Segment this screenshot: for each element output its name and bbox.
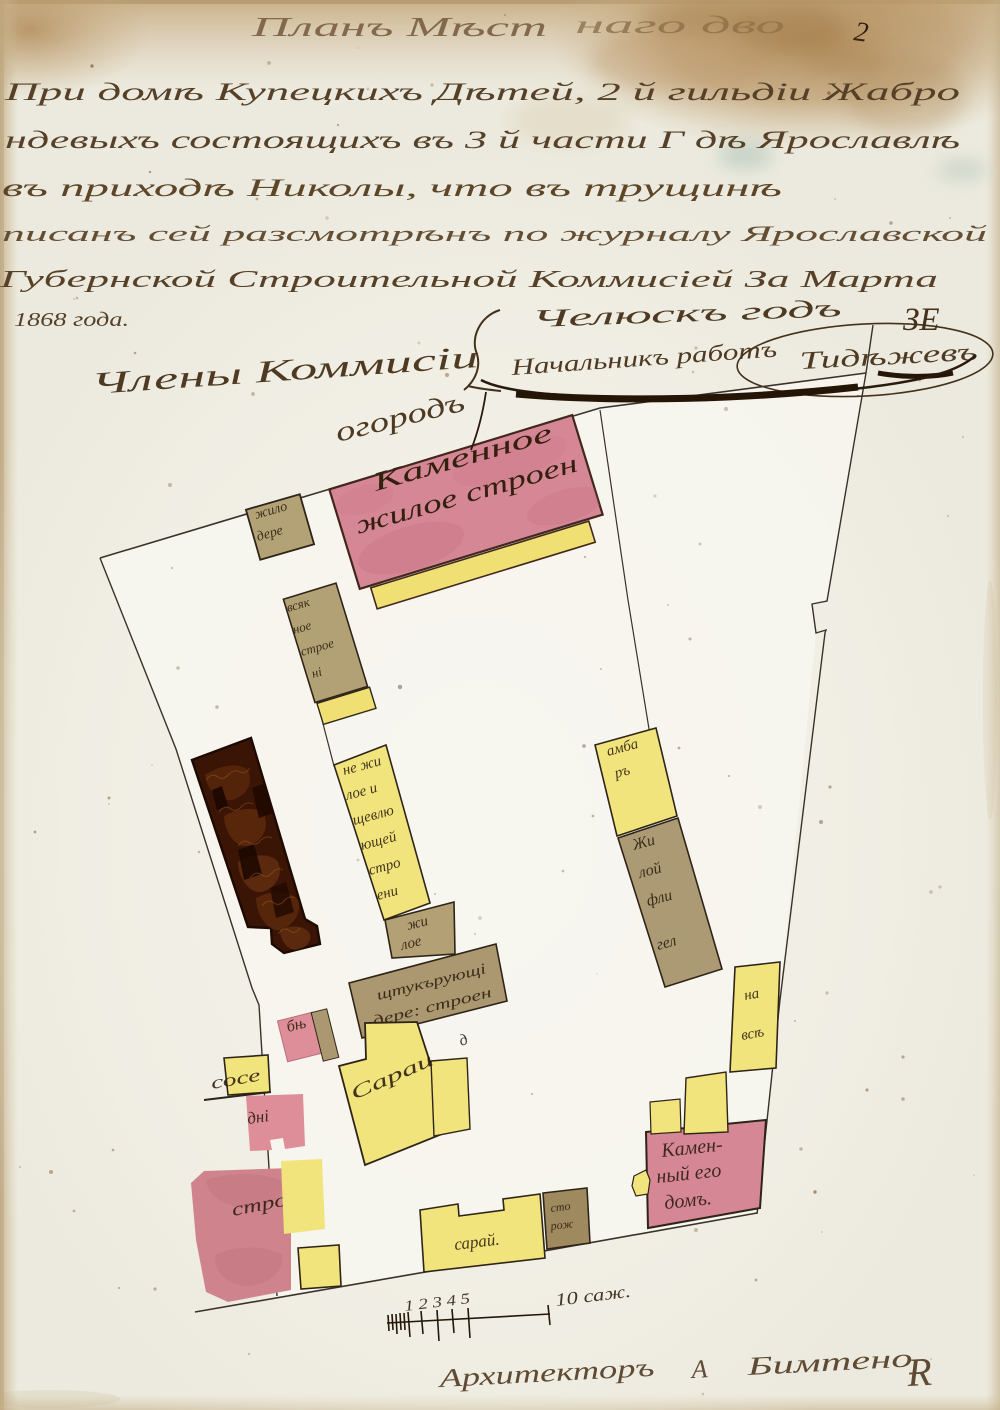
svg-text:писанъ сей разсмотрѣнъ по журн: писанъ сей разсмотрѣнъ по журналу Яросла… bbox=[2, 221, 987, 246]
svg-text:Планъ Мѣст: Планъ Мѣст bbox=[250, 12, 547, 42]
svg-text:ндевыхъ состоящихъ въ 3 й част: ндевыхъ состоящихъ въ 3 й части Г дѣ Яро… bbox=[5, 127, 960, 154]
svg-text:на: на bbox=[743, 986, 761, 1004]
svg-text:1868 года.: 1868 года. bbox=[14, 309, 129, 331]
svg-text:ЗЕ: ЗЕ bbox=[903, 302, 940, 338]
svg-text:При домѣ Купецкихъ Дѣтей, 2 й: При домѣ Купецкихъ Дѣтей, 2 й гильдіи Жа… bbox=[3, 79, 960, 106]
svg-text:рож: рож bbox=[549, 1216, 574, 1233]
svg-text:сто: сто bbox=[550, 1199, 572, 1215]
svg-text:Ɍ: Ɍ bbox=[905, 1349, 933, 1395]
svg-text:въ приходѣ Николы, что въ трущ: въ приходѣ Николы, что въ трущинѣ bbox=[2, 175, 782, 202]
svg-text:А: А bbox=[689, 1354, 708, 1384]
svg-text:Губернской Строительной Коммис: Губернской Строительной Коммисіей За Мар… bbox=[0, 267, 938, 293]
svg-text:дні: дні bbox=[246, 1106, 270, 1128]
